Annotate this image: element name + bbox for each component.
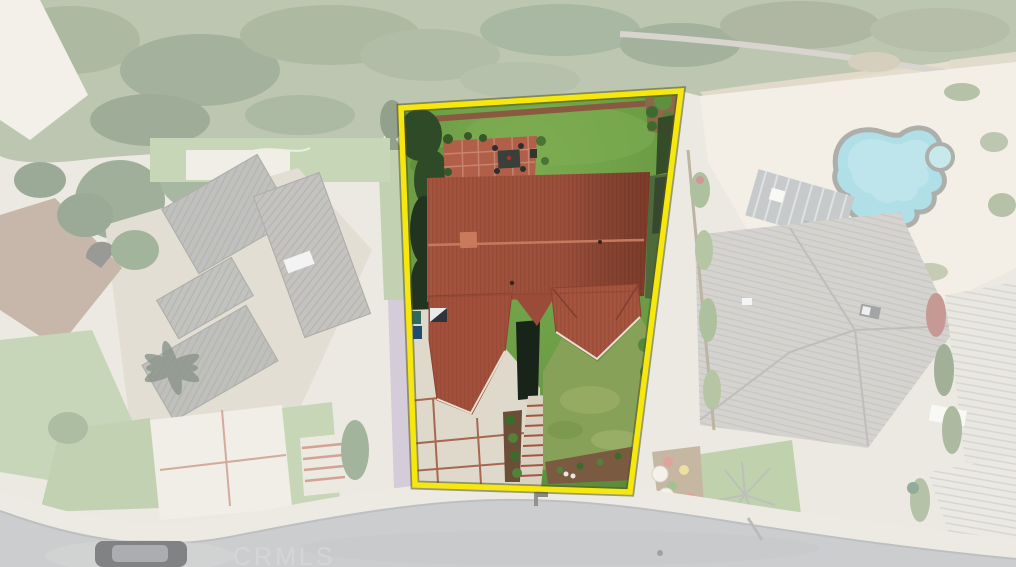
aerial-photo: CRMLS: [0, 0, 1016, 567]
aerial-photo-canvas: CRMLS: [0, 0, 1016, 567]
grill: [530, 149, 537, 158]
roof-light-patch: [460, 232, 478, 249]
entry-courtyard: [516, 320, 540, 400]
ac-unit: [430, 308, 447, 322]
crmls-watermark: CRMLS: [233, 543, 336, 567]
red-item: [507, 156, 511, 160]
walkway-planting: [503, 410, 522, 482]
brick-patio: [443, 136, 537, 181]
